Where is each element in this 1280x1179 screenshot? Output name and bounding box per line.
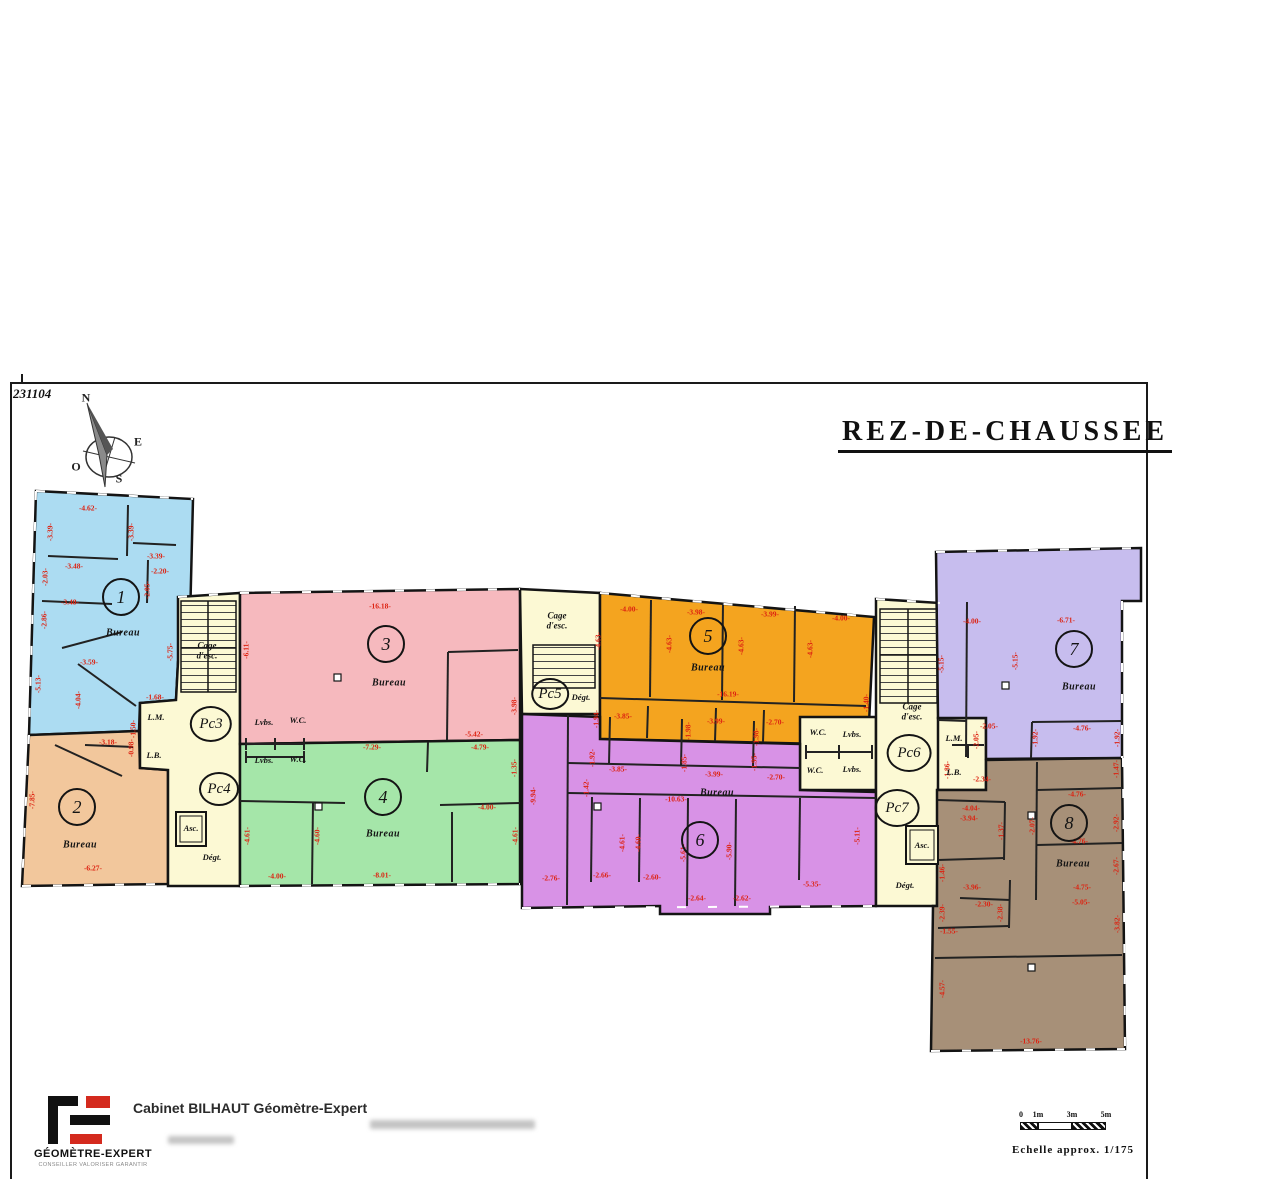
room-label: Lvbs. <box>843 730 862 740</box>
room-label: L.M. <box>148 713 165 723</box>
room-label: W.C. <box>807 766 824 776</box>
dimension-label: -2.05- <box>980 722 998 731</box>
scale-tick-0: 0 <box>1019 1110 1023 1119</box>
dimension-label: -1.50- <box>129 720 138 738</box>
scale-bar-segment-3 <box>1072 1122 1106 1130</box>
room-label: L.B. <box>146 751 161 761</box>
geometre-expert-logo <box>48 1096 120 1144</box>
dimension-label: -2.05- <box>143 581 152 599</box>
dimension-label: -1.85- <box>680 754 689 772</box>
room-label: Lvbs. <box>255 718 274 728</box>
dimension-label: -4.76- <box>1068 790 1086 799</box>
dimension-label: -13.76- <box>1020 1037 1042 1046</box>
dimension-label: -4.00- <box>620 605 638 614</box>
dimension-label: -3.39- <box>127 523 136 541</box>
dimension-label: -5.15- <box>937 655 946 673</box>
dimension-label: -5.15- <box>1011 652 1020 670</box>
dimension-label: -1.35- <box>510 759 519 777</box>
dimension-label: -8.01- <box>373 871 391 880</box>
room-label: Lvbs. <box>843 765 862 775</box>
zone-2-room-label: Bureau <box>63 840 97 851</box>
dimension-label: -4.60- <box>313 827 322 845</box>
dimension-label: -10.63- <box>665 795 687 804</box>
dimension-label: -4.61- <box>243 827 252 845</box>
scale-caption: Echelle approx. 1/175 <box>1008 1144 1138 1156</box>
dimension-label: -3.39- <box>147 552 165 561</box>
dimension-label: -9.94- <box>529 787 538 805</box>
dimension-label: -4.62- <box>79 504 97 513</box>
dimension-label: -2.70- <box>766 718 784 727</box>
dimension-label: -2.76- <box>542 874 560 883</box>
pc3-label: Pc3 <box>190 706 232 742</box>
dimension-label: -5.90- <box>725 842 734 860</box>
zone-1-number: 1 <box>102 578 140 616</box>
dimension-label: -3.39- <box>46 523 55 541</box>
dimension-label: -0.98- <box>127 739 136 757</box>
dimension-label: -2.20- <box>151 567 169 576</box>
dimension-label: -6.27- <box>84 864 102 873</box>
redacted-address-smudge <box>370 1120 535 1129</box>
zone-4-room-label: Bureau <box>366 829 400 840</box>
zone-5-number: 5 <box>689 617 727 655</box>
room-label: W.C. <box>810 728 827 738</box>
pc4-label: Pc4 <box>199 772 239 806</box>
dimension-label: -4.63- <box>665 635 674 653</box>
room-label: Asc. <box>915 841 930 851</box>
dimension-label: -4.00- <box>478 803 496 812</box>
dimension-label: -4.79- <box>471 743 489 752</box>
dimension-label: -6.11- <box>242 641 251 659</box>
dimension-label: -3.48- <box>65 562 83 571</box>
dimension-label: -2.66- <box>593 871 611 880</box>
zone-6-number: 6 <box>681 821 719 859</box>
dimension-label: -2.38- <box>996 904 1005 922</box>
dimension-label: -5.13- <box>34 675 43 693</box>
room-label: Cage d'esc. <box>902 702 923 723</box>
dimension-label: -1.95- <box>750 753 759 771</box>
dimension-label: -1.98- <box>684 722 693 740</box>
dimension-label: -16.18- <box>369 602 391 611</box>
dimension-label: -7.85- <box>28 791 37 809</box>
room-label: Lvbs. <box>255 756 274 766</box>
dimension-label: -1.92- <box>1113 729 1122 747</box>
zone-3-room-label: Bureau <box>372 678 406 689</box>
room-label: Dégt. <box>203 853 222 863</box>
zone-8-room-label: Bureau <box>1056 859 1090 870</box>
dimension-label: -2.67- <box>1112 857 1121 875</box>
room-label: L.B. <box>946 768 961 778</box>
dimension-label: -1.94- <box>592 710 601 728</box>
dimension-label: -3.96- <box>963 883 981 892</box>
redacted-text-smudge <box>168 1136 234 1144</box>
logo-tagline: CONSEILLER VALORISER GARANTIR <box>28 1162 158 1168</box>
dimension-label: -1.98- <box>752 728 761 746</box>
scale-bar-segment-2 <box>1038 1122 1072 1130</box>
dimension-label: -6.71- <box>1057 616 1075 625</box>
dimension-label: -2.62- <box>733 894 751 903</box>
zone-2-number: 2 <box>58 788 96 826</box>
zone-7-room-label: Bureau <box>1062 682 1096 693</box>
dimension-label: -4.75- <box>1073 883 1091 892</box>
dimension-label: -2.05- <box>972 731 981 749</box>
scale-tick-3m: 3m <box>1067 1110 1078 1119</box>
dimension-label: -2.34- <box>973 775 991 784</box>
dimension-label: -4.00- <box>268 872 286 881</box>
dimension-label: -4.00- <box>832 614 850 623</box>
dimension-label: -2.92- <box>1112 814 1121 832</box>
room-label: Dégt. <box>896 881 915 891</box>
dimension-label: -4.04- <box>962 804 980 813</box>
dimension-label: -5.42- <box>465 730 483 739</box>
dimension-label: -3.94- <box>960 814 978 823</box>
scale-tick-1m: 1m <box>1033 1110 1044 1119</box>
dimension-label: -3.18- <box>99 738 117 747</box>
dimension-label: -3.85- <box>614 712 632 721</box>
zone-3-number: 3 <box>367 625 405 663</box>
dimension-label: -2.39- <box>938 904 947 922</box>
dimension-label: -1.40- <box>862 694 871 712</box>
zone-7-number: 7 <box>1055 630 1093 668</box>
dimension-label: -3.98- <box>687 608 705 617</box>
dimension-label: -2.70- <box>767 773 785 782</box>
dimension-label: -1.68- <box>146 693 164 702</box>
dimension-label: -3.99- <box>705 770 723 779</box>
dimension-label: -1.47- <box>1112 760 1121 778</box>
zone-4-number: 4 <box>364 778 402 816</box>
room-label: Dégt. <box>572 693 591 703</box>
dimension-label: -1.37- <box>997 822 1006 840</box>
pc5-label: Pc5 <box>531 678 569 710</box>
dimension-label: -1.46- <box>938 864 947 882</box>
zone-8-number: 8 <box>1050 804 1088 842</box>
dimension-label: -16.19- <box>717 690 739 699</box>
dimension-label: -2.64- <box>688 894 706 903</box>
dimension-label: -2.86- <box>40 611 49 629</box>
dimension-label: -2.60- <box>643 873 661 882</box>
floor-plan-sheet: 231104 REZ-DE-CHAUSSEE N E O S <box>0 0 1280 1179</box>
room-label: Cage d'esc. <box>547 611 568 632</box>
dimension-label: -4.61- <box>618 834 627 852</box>
scale-tick-5m: 5m <box>1101 1110 1112 1119</box>
dimension-label: -4.63- <box>594 632 603 650</box>
room-label: Asc. <box>184 824 199 834</box>
dimension-label: -2.07- <box>1028 817 1037 835</box>
dimension-label: -3.99- <box>761 610 779 619</box>
dimension-label: -5.35- <box>803 880 821 889</box>
dimension-label: -1.55- <box>940 927 958 936</box>
dimension-label: -4.63- <box>806 640 815 658</box>
dimension-label: -3.99- <box>707 717 725 726</box>
dimension-label: -7.29- <box>363 743 381 752</box>
room-label: L.M. <box>946 734 963 744</box>
pc7-label: Pc7 <box>875 789 920 827</box>
pc6-label: Pc6 <box>887 734 932 772</box>
dimension-label: -4.00- <box>963 617 981 626</box>
dimension-label: -4.76- <box>1073 724 1091 733</box>
dimension-label: -2.30- <box>975 900 993 909</box>
dimension-label: -5.11- <box>853 827 862 845</box>
dimension-label: -3.85- <box>609 765 627 774</box>
dimension-label: -4.57- <box>938 980 947 998</box>
annotation-layer: -4.62--3.39--3.39--3.39--3.48--2.20--2.0… <box>0 0 1280 1179</box>
dimension-label: -1.92- <box>588 749 597 767</box>
dimension-label: -4.04- <box>74 691 83 709</box>
logo-title: GÉOMÈTRE-EXPERT <box>28 1148 158 1160</box>
room-label: W.C. <box>290 716 307 726</box>
dimension-label: -3.59- <box>80 658 98 667</box>
dimension-label: -2.03- <box>41 568 50 586</box>
dimension-label: -4.63- <box>737 637 746 655</box>
dimension-label: -3.48- <box>61 598 79 607</box>
dimension-label: -4.60- <box>634 834 643 852</box>
dimension-label: -3.98- <box>510 697 519 715</box>
scale-bar-segment-1 <box>1020 1122 1038 1130</box>
cabinet-name: Cabinet BILHAUT Géomètre-Expert <box>133 1100 367 1116</box>
room-label: W.C. <box>290 755 307 765</box>
zone-5-room-label: Bureau <box>691 663 725 674</box>
zone-1-room-label: Bureau <box>106 628 140 639</box>
dimension-label: -4.61- <box>511 827 520 845</box>
dimension-label: -5.75- <box>166 643 175 661</box>
dimension-label: -3.82- <box>1113 915 1122 933</box>
zone-6-room-label: Bureau <box>700 788 734 799</box>
dimension-label: -1.42- <box>582 779 591 797</box>
dimension-label: -1.92- <box>1031 729 1040 747</box>
room-label: Cage d'esc. <box>197 641 218 662</box>
dimension-label: -5.05- <box>1072 898 1090 907</box>
